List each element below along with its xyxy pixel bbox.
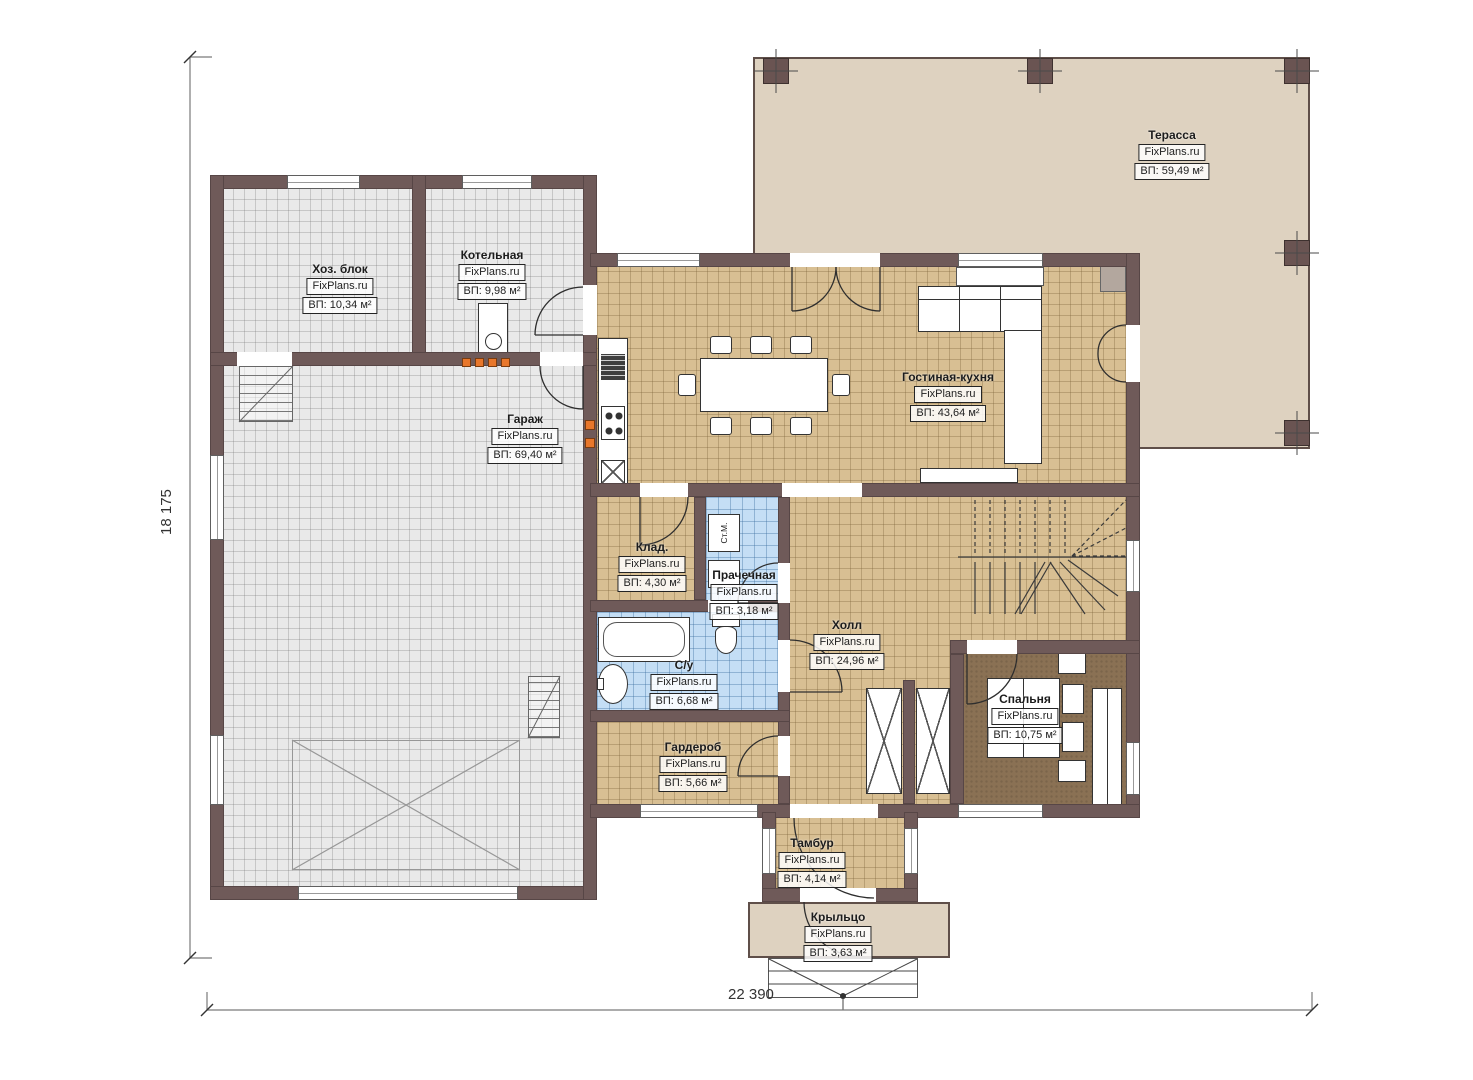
watermark: FixPlans.ru	[650, 674, 717, 691]
terrace-door-opening	[790, 253, 880, 267]
door-opening	[790, 804, 878, 818]
parking-marking	[292, 740, 520, 870]
stairs-symbol-garage-2	[528, 676, 560, 738]
room-name: Терасса	[1148, 128, 1196, 142]
window	[287, 175, 360, 189]
toilet-bowl-symbol	[715, 626, 737, 654]
washer-label: Ст.М.	[706, 518, 742, 548]
window	[617, 253, 700, 267]
room-area: ВП: 10,75 м²	[987, 727, 1062, 744]
room-name: Гараж	[507, 412, 543, 426]
window	[462, 175, 532, 189]
watermark: FixPlans.ru	[710, 584, 777, 601]
watermark: FixPlans.ru	[458, 264, 525, 281]
dimension-width: 22 390	[728, 986, 774, 1003]
room-area: ВП: 59,49 м²	[1134, 163, 1209, 180]
entrance-steps-symbol	[768, 958, 918, 998]
wall	[590, 710, 790, 722]
watermark: FixPlans.ru	[804, 926, 871, 943]
dining-table-symbol	[700, 358, 828, 412]
door-opening	[778, 640, 790, 692]
wall	[210, 175, 597, 189]
room-name: Гардероб	[665, 740, 722, 754]
door-opening	[967, 640, 1017, 654]
room-label-prachechnaya: Прачечная FixPlans.ru ВП: 3,18 м²	[709, 568, 778, 620]
chair-symbol	[678, 374, 696, 396]
room-name: Хоз. блок	[312, 262, 368, 276]
watermark: FixPlans.ru	[778, 852, 845, 869]
window	[640, 804, 758, 818]
room-area: ВП: 3,18 м²	[709, 603, 778, 620]
stairs-symbol-garage	[239, 366, 293, 422]
terrace-column	[763, 58, 789, 84]
wall	[412, 175, 426, 366]
room-label-holl: Холл FixPlans.ru ВП: 24,96 м²	[809, 618, 884, 670]
chair-symbol	[750, 336, 772, 354]
window	[1126, 742, 1140, 795]
room-name: Клад.	[636, 540, 669, 554]
room-label-garazh: Гараж FixPlans.ru ВП: 69,40 м²	[487, 412, 562, 464]
wall	[583, 175, 597, 900]
room-area: ВП: 4,30 м²	[617, 575, 686, 592]
door-opening	[778, 736, 790, 776]
pillow-symbol	[1062, 684, 1084, 714]
window-sill	[956, 267, 1044, 286]
bathtub-symbol	[598, 617, 690, 662]
radiator-dot	[585, 438, 595, 448]
entrance-door-opening	[800, 888, 876, 902]
room-label-gostinaya: Гостиная-кухня FixPlans.ru ВП: 43,64 м²	[902, 370, 994, 422]
faucet-symbol	[597, 678, 604, 690]
radiator-dot	[501, 358, 510, 367]
room-area: ВП: 24,96 м²	[809, 653, 884, 670]
room-label-garderob: Гардероб FixPlans.ru ВП: 5,66 м²	[658, 740, 727, 792]
room-name: Прачечная	[712, 568, 776, 582]
room-label-spalnya: Спальня FixPlans.ru ВП: 10,75 м²	[987, 692, 1062, 744]
window	[904, 828, 918, 874]
garage-door	[298, 886, 518, 900]
window	[210, 735, 224, 805]
room-area: ВП: 4,14 м²	[777, 871, 846, 888]
bedroom-wardrobe-symbol	[1092, 688, 1122, 808]
room-label-kryltso: Крыльцо FixPlans.ru ВП: 3,63 м²	[803, 910, 872, 962]
room-area: ВП: 9,98 м²	[457, 283, 526, 300]
room-name: Холл	[832, 618, 862, 632]
window	[958, 804, 1043, 818]
sofa-symbol	[918, 286, 1042, 332]
wall	[903, 680, 915, 804]
sofa-chaise-symbol	[1004, 330, 1042, 464]
room-label-su: С/у FixPlans.ru ВП: 6,68 м²	[649, 658, 718, 710]
pillow-symbol	[1062, 722, 1084, 752]
window	[958, 253, 1043, 267]
boiler-symbol	[478, 303, 508, 355]
door-opening	[237, 352, 292, 366]
chair-symbol	[790, 336, 812, 354]
room-area: ВП: 3,63 м²	[803, 945, 872, 962]
door-opening	[583, 285, 597, 335]
room-area: ВП: 10,34 м²	[302, 297, 377, 314]
chair-symbol	[710, 417, 732, 435]
chair-symbol	[832, 374, 850, 396]
nightstand-symbol	[1058, 760, 1086, 782]
cabinet-symbol	[601, 460, 625, 484]
terrace-column	[1027, 58, 1053, 84]
watermark: FixPlans.ru	[306, 278, 373, 295]
room-name: Гостиная-кухня	[902, 370, 994, 384]
door-opening	[640, 483, 688, 497]
wall	[694, 497, 706, 600]
door-opening	[778, 563, 790, 603]
terrace-column	[1284, 420, 1310, 446]
watermark: FixPlans.ru	[914, 386, 981, 403]
dimension-height: 18 175	[158, 489, 175, 535]
room-area: ВП: 43,64 м²	[910, 405, 985, 422]
terrace-column	[1284, 58, 1310, 84]
watermark: FixPlans.ru	[991, 708, 1058, 725]
wardrobe-symbol	[916, 688, 950, 794]
door-opening	[540, 352, 583, 366]
room-name: Спальня	[999, 692, 1051, 706]
terrace-column	[1284, 240, 1310, 266]
room-label-terrasa: Терасса FixPlans.ru ВП: 59,49 м²	[1134, 128, 1209, 180]
room-area: ВП: 69,40 м²	[487, 447, 562, 464]
terrace-door-opening	[1126, 325, 1140, 382]
room-label-tambur: Тамбур FixPlans.ru ВП: 4,14 м²	[777, 836, 846, 888]
room-label-hoz-blok: Хоз. блок FixPlans.ru ВП: 10,34 м²	[302, 262, 377, 314]
radiator-dot	[475, 358, 484, 367]
hall-opening	[782, 483, 862, 497]
stove-symbol	[601, 406, 625, 440]
watermark: FixPlans.ru	[659, 756, 726, 773]
room-area: ВП: 5,66 м²	[658, 775, 727, 792]
room-name: Котельная	[461, 248, 524, 262]
watermark: FixPlans.ru	[491, 428, 558, 445]
washing-machine-symbol: Ст.М.	[708, 514, 740, 552]
tv-console-symbol	[920, 468, 1018, 483]
watermark: FixPlans.ru	[618, 556, 685, 573]
window	[1126, 540, 1140, 592]
chair-symbol	[790, 417, 812, 435]
kitchen-sink-symbol	[601, 354, 625, 380]
floor-plan-canvas: Ст.М.	[0, 0, 1473, 1080]
room-name: Тамбур	[790, 836, 834, 850]
room-label-klad: Клад. FixPlans.ru ВП: 4,30 м²	[617, 540, 686, 592]
window	[210, 455, 224, 540]
watermark: FixPlans.ru	[813, 634, 880, 651]
chair-symbol	[750, 417, 772, 435]
room-label-kotelnaya: Котельная FixPlans.ru ВП: 9,98 м²	[457, 248, 526, 300]
radiator-dot	[462, 358, 471, 367]
wardrobe-symbol	[866, 688, 902, 794]
watermark: FixPlans.ru	[1138, 144, 1205, 161]
room-area: ВП: 6,68 м²	[649, 693, 718, 710]
room-name: Крыльцо	[811, 910, 866, 924]
chair-symbol	[710, 336, 732, 354]
radiator-dot	[488, 358, 497, 367]
room-name: С/у	[675, 658, 694, 672]
wall	[950, 654, 964, 804]
radiator-dot	[585, 420, 595, 430]
nightstand-symbol	[1058, 652, 1086, 674]
window	[762, 828, 776, 874]
